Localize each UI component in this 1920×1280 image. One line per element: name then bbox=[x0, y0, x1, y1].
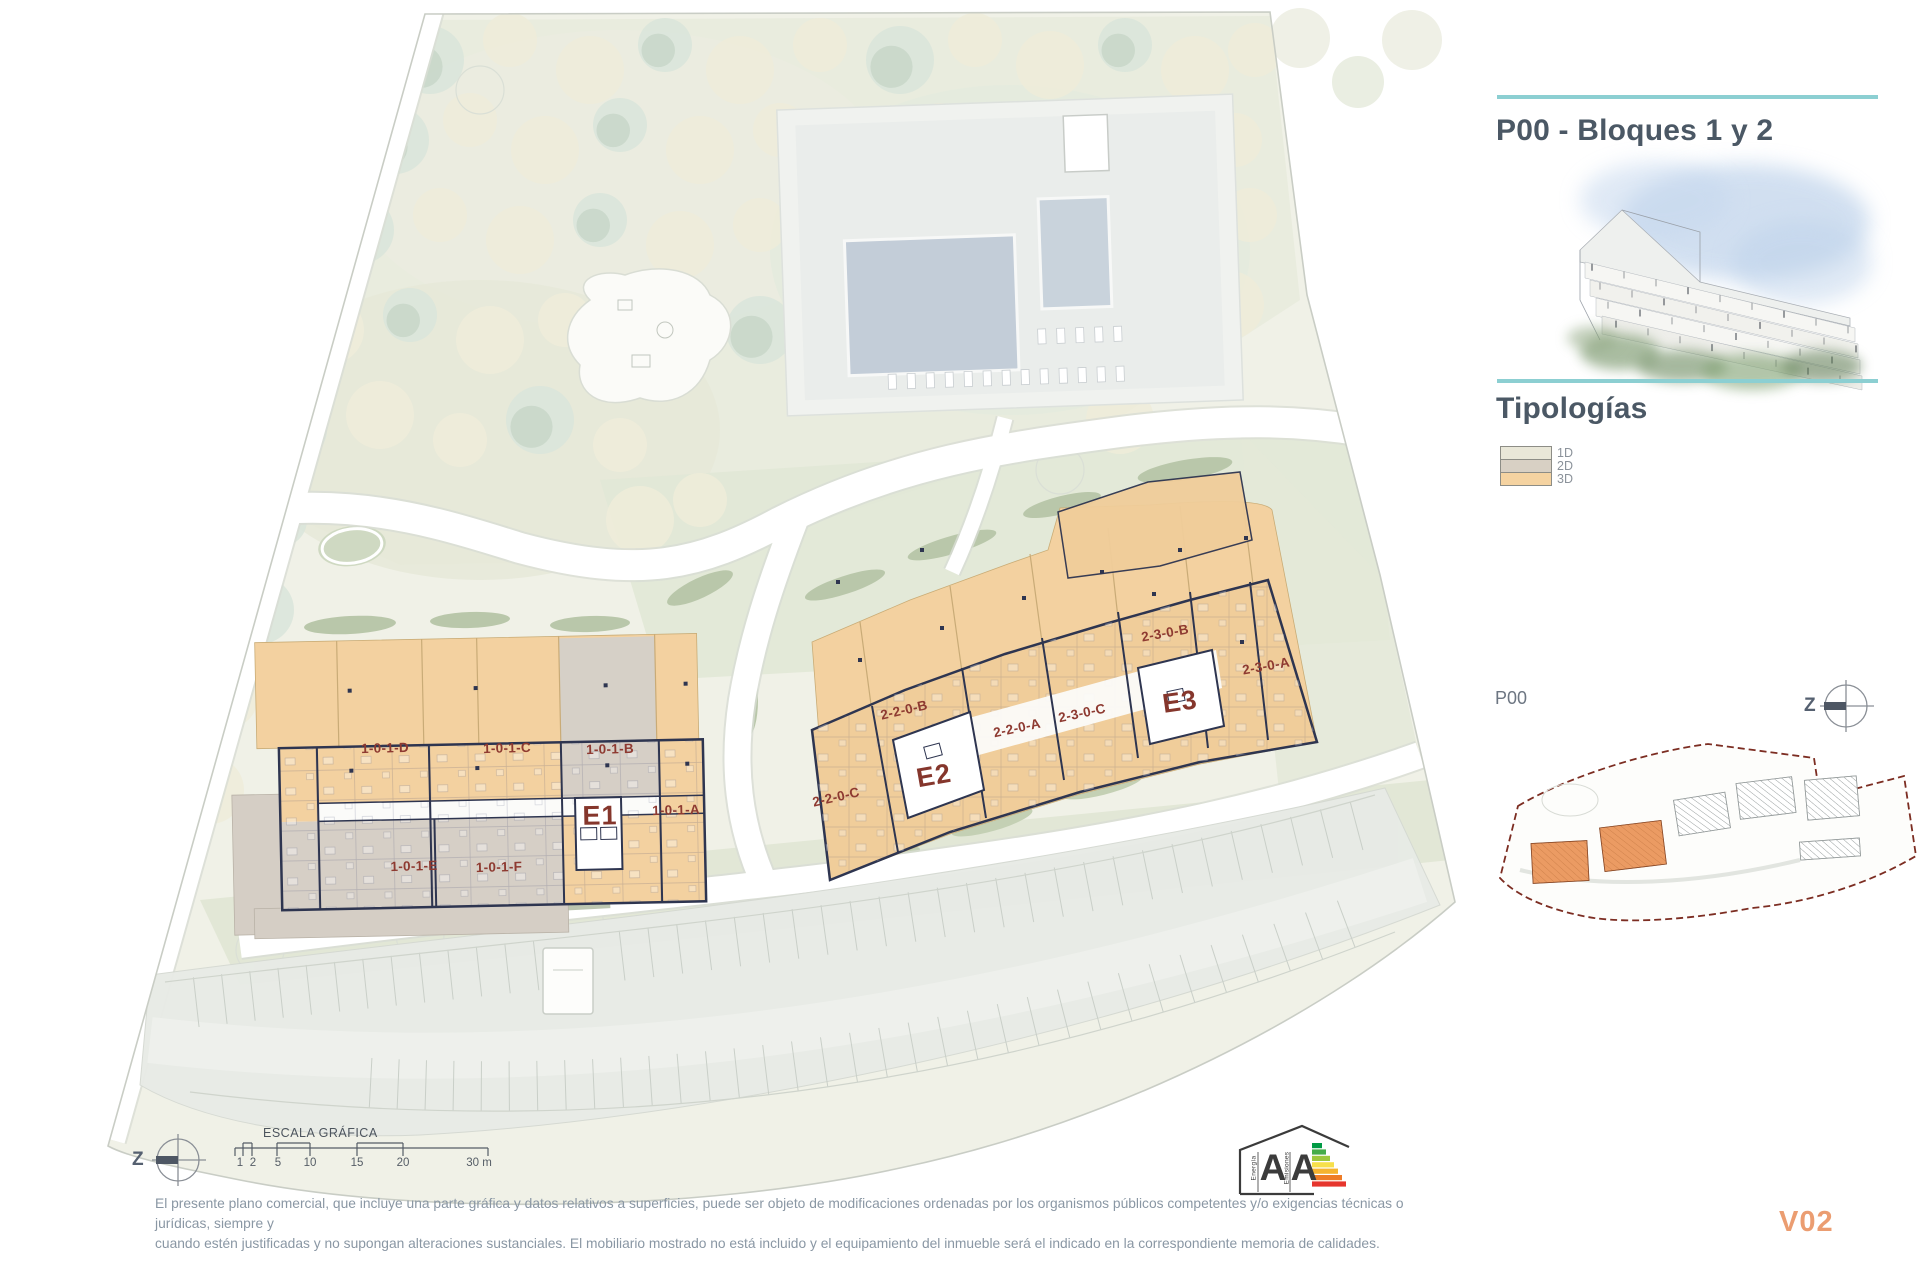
pool-area bbox=[777, 94, 1243, 416]
typologies-heading: Tipologías bbox=[1496, 392, 1647, 426]
accent-line-top bbox=[1497, 95, 1878, 99]
scale-tick-label: 10 bbox=[304, 1157, 317, 1169]
core-label: E1 bbox=[582, 800, 618, 832]
keyplan-level-label: P00 bbox=[1495, 688, 1527, 709]
keyplan-boundary bbox=[1500, 744, 1916, 920]
plan-sheet: P00 - Bloques 1 y 2 Tipologías 1D 2D 3D … bbox=[0, 0, 1920, 1280]
legend-label-2d: 2D bbox=[1557, 459, 1573, 473]
keyplan-compass-letter: Z bbox=[1804, 695, 1816, 717]
pool-pavilion bbox=[1063, 115, 1109, 173]
energy-letter-emissions: A bbox=[1291, 1147, 1318, 1189]
legend-swatch-3d bbox=[1500, 472, 1552, 486]
pool-lap bbox=[1038, 197, 1112, 309]
site-plan-drawing bbox=[0, 0, 1920, 1280]
energy-word-energia: Energía bbox=[1251, 1156, 1258, 1181]
offsite-trees bbox=[1270, 8, 1442, 108]
legend-label-3d: 3D bbox=[1557, 472, 1573, 486]
disclaimer-line-1: El presente plano comercial, que incluye… bbox=[155, 1196, 1404, 1231]
legend-swatch-2d bbox=[1500, 459, 1552, 473]
pool-main bbox=[844, 235, 1019, 376]
scale-tick-label: 20 bbox=[397, 1157, 410, 1169]
main-compass-letter: Z bbox=[132, 1149, 144, 1171]
page-title: P00 - Bloques 1 y 2 bbox=[1496, 114, 1773, 148]
block-1 bbox=[229, 633, 707, 939]
unit-label: 1-0-1-D bbox=[361, 740, 409, 756]
unit-label: 1-0-1-E bbox=[390, 858, 438, 874]
north-compass-keyplan bbox=[1820, 680, 1874, 732]
parking-hut bbox=[543, 948, 593, 1014]
unit-label: 1-0-1-B bbox=[586, 741, 634, 757]
key-plan bbox=[1500, 744, 1916, 920]
energy-word-emisiones: Emisiones bbox=[1284, 1152, 1291, 1185]
scale-tick-label: 30 m bbox=[466, 1157, 492, 1169]
disclaimer-text: El presente plano comercial, que incluye… bbox=[155, 1194, 1455, 1254]
garden-sheds bbox=[107, 393, 163, 459]
core-label: E3 bbox=[1160, 684, 1199, 720]
unit-label: 1-0-1-F bbox=[476, 859, 523, 875]
scale-tick-label: 2 bbox=[250, 1157, 256, 1169]
scale-tick-label: 5 bbox=[275, 1157, 281, 1169]
scale-tick-label: 15 bbox=[351, 1157, 364, 1169]
disclaimer-line-2: cuando estén justificadas y no supongan … bbox=[155, 1236, 1380, 1251]
unit-label: 1-0-1-C bbox=[483, 740, 531, 756]
rendering-image bbox=[1567, 162, 1872, 390]
legend-label-1d: 1D bbox=[1557, 446, 1573, 460]
unit-label: 1-0-1-A bbox=[652, 802, 700, 818]
core-label: E2 bbox=[914, 758, 954, 795]
scale-bar-title: ESCALA GRÁFICA bbox=[263, 1126, 378, 1140]
energy-letter-consumption: A bbox=[1260, 1147, 1287, 1189]
legend-swatch-1d bbox=[1500, 446, 1552, 460]
version-label: V02 bbox=[1779, 1206, 1834, 1239]
scale-tick-label: 1 bbox=[237, 1157, 243, 1169]
accent-line-bottom bbox=[1497, 379, 1878, 383]
